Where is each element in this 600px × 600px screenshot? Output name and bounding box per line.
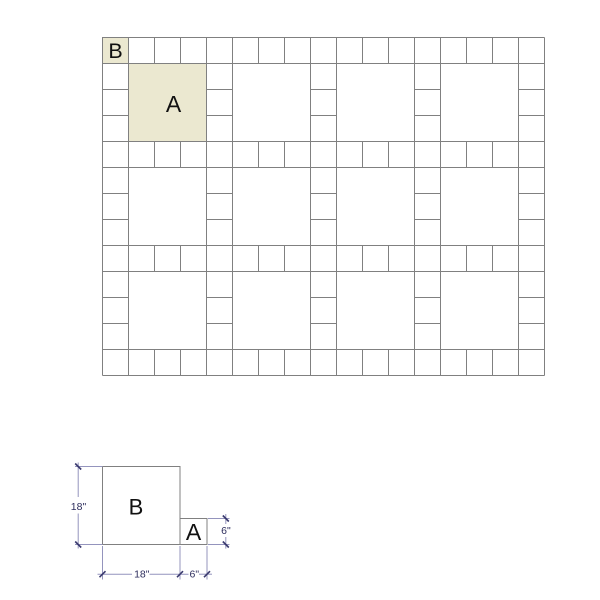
svg-text:18": 18" — [134, 569, 150, 581]
svg-text:B: B — [108, 39, 122, 63]
svg-text:B: B — [129, 495, 144, 520]
svg-text:6": 6" — [221, 525, 231, 537]
svg-text:18": 18" — [71, 501, 87, 513]
svg-text:6": 6" — [190, 569, 200, 581]
svg-text:A: A — [186, 519, 202, 545]
svg-text:A: A — [166, 91, 182, 117]
